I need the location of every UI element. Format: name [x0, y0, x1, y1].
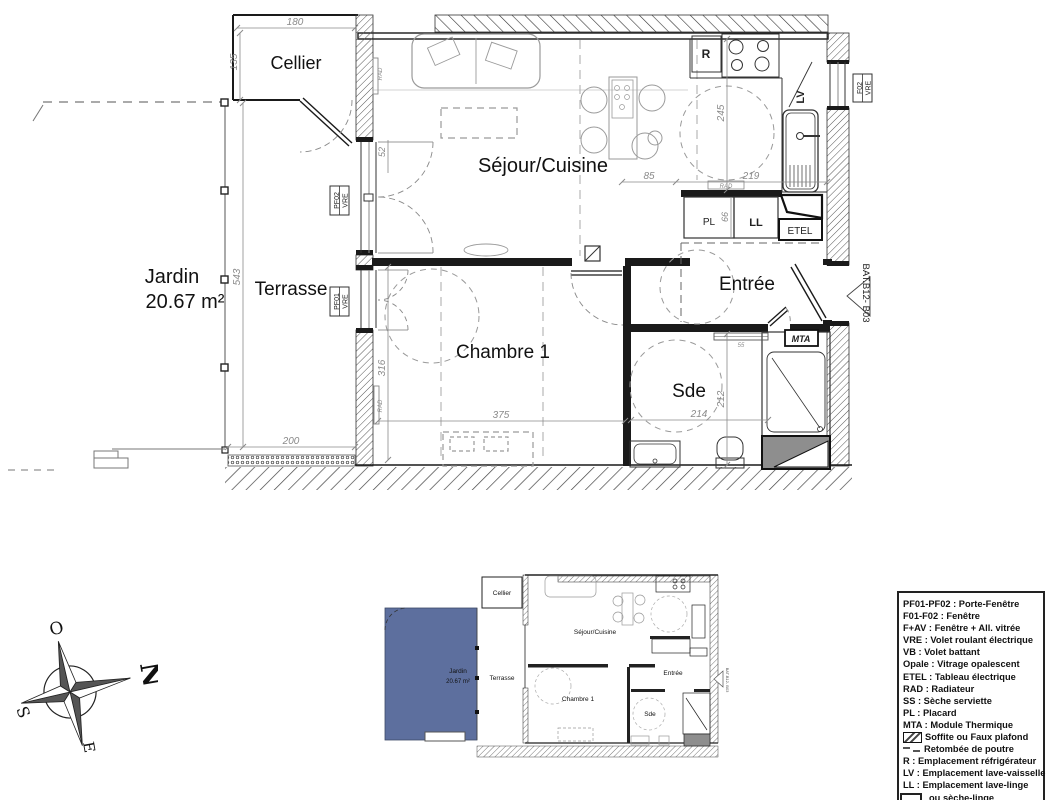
dim-375: 375	[493, 410, 510, 421]
vre-label: VRE	[343, 193, 350, 208]
washbasin	[630, 441, 680, 467]
furniture	[373, 34, 665, 466]
room-label-sejour: Séjour/Cuisine	[478, 155, 608, 177]
ground-hatch-band	[225, 467, 852, 490]
mini-label-jardin-area: 20.67 m²	[446, 679, 470, 685]
legend-item: MTA : Module Thermique	[903, 719, 1040, 731]
rad-tag: RAD	[720, 184, 733, 190]
mini-label-jardin: Jardin	[449, 668, 467, 675]
legend-item-retombee: Retombée de poutre	[903, 743, 1040, 755]
dim-135: 135	[229, 53, 240, 70]
soffite-shape	[781, 195, 822, 218]
column-box	[585, 246, 600, 261]
dishwasher-tag: LV	[795, 90, 807, 104]
coffee-table	[441, 108, 517, 138]
room-label-jardin: Jardin	[145, 266, 199, 288]
compass-rose: O N S E	[8, 608, 158, 768]
dim-52: 52	[377, 147, 387, 157]
legend-item: LV : Emplacement lave-vaisselle	[903, 767, 1040, 779]
f02-label: F02	[857, 82, 864, 94]
window-pf01	[361, 270, 408, 330]
fence-post	[221, 276, 228, 283]
dim-219: 219	[742, 171, 760, 182]
window-f02	[830, 62, 845, 106]
mini-label-sejour: Séjour/Cuisine	[574, 629, 617, 636]
toilet	[716, 437, 744, 468]
legend-item: Opale : Vitrage opalescent	[903, 658, 1040, 670]
dim-85: 85	[643, 171, 655, 182]
legend-partial-icon	[900, 793, 922, 800]
jardin-area-label: 20.67 m²	[146, 291, 225, 313]
ceiling-guides	[372, 40, 823, 460]
rad-tag: RAD	[378, 67, 384, 80]
console-object	[464, 244, 508, 256]
legend-item: RAD : Radiateur	[903, 683, 1040, 695]
window-pf02	[361, 142, 433, 253]
exterior-walls	[355, 15, 852, 466]
mini-overview-plan: Cellier Séjour/Cuisine Jardin 20.67 m² T…	[378, 568, 768, 783]
legend-item: VRE : Volet roulant électrique	[903, 634, 1040, 646]
garden-step	[94, 458, 128, 468]
compass-west-label: O	[47, 618, 66, 641]
pf02-vre-tag: PF02 VRE	[330, 186, 350, 215]
mini-label-sde: Sde	[644, 711, 656, 718]
mini-label-entree: Entrée	[663, 670, 683, 677]
entrance-door	[791, 259, 870, 326]
fence-post	[221, 187, 228, 194]
legend-item: F+AV : Fenêtre + All. vitrée	[903, 622, 1040, 634]
mini-bat-label: BAT.B12- B03	[725, 668, 730, 694]
bedroom-door	[571, 271, 623, 325]
dim-55: 55	[738, 343, 745, 349]
legend-item: SS : Sèche serviette	[903, 695, 1040, 707]
legend-item: R : Emplacement réfrigérateur	[903, 755, 1040, 767]
washer-tag: LL	[749, 217, 763, 229]
bed	[443, 432, 533, 466]
vre-label: VRE	[866, 80, 873, 95]
bathroom	[630, 332, 830, 469]
room-label-terrasse: Terrasse	[255, 279, 328, 300]
sofa	[412, 34, 540, 88]
f02-vre-tag: F02 VRE	[853, 74, 873, 102]
dim-212: 212	[716, 390, 727, 408]
legend-item: VB : Volet battant	[903, 646, 1040, 658]
legend-item: PF01-PF02 : Porte-Fenêtre	[903, 598, 1040, 610]
mini-fixtures	[545, 576, 723, 746]
beam-dash-icon	[903, 745, 921, 753]
mta-tag: MTA	[792, 334, 811, 344]
dim-316: 316	[377, 359, 388, 376]
mini-garden-step	[425, 732, 465, 741]
legend-item: ETEL : Tableau électrique	[903, 671, 1040, 683]
placard-tag: PL	[703, 217, 716, 228]
soffite-hatch-icon	[903, 732, 922, 743]
dim-200: 200	[282, 436, 300, 447]
mini-building	[477, 575, 723, 757]
compass-south-label: S	[12, 704, 34, 721]
towel-radiator	[714, 333, 768, 340]
legend-item: PL : Placard	[903, 707, 1040, 719]
mini-labels: Cellier Séjour/Cuisine Jardin 20.67 m² T…	[446, 590, 730, 718]
kitchen	[690, 34, 827, 192]
dimensions	[225, 25, 830, 468]
mini-label-chambre: Chambre 1	[562, 696, 595, 703]
rad-tag: RAD	[378, 399, 384, 412]
dim-245: 245	[716, 104, 727, 122]
pf01-label: PF01	[334, 293, 341, 310]
legend-item-soffite: Soffite ou Faux plafond	[903, 731, 1040, 743]
dim-214: 214	[690, 409, 708, 420]
terrace-edge-band	[228, 455, 355, 466]
dim-ticks	[225, 25, 830, 468]
mini-circles	[535, 596, 687, 730]
soffite-band	[435, 15, 828, 32]
etel-tag: ETEL	[787, 226, 812, 237]
main-floor-plan: PF02 VRE PF01 VRE F02 VRE Cellier Séjour…	[0, 0, 890, 500]
floor-plan-page: PF02 VRE PF01 VRE F02 VRE Cellier Séjour…	[0, 0, 1047, 800]
shower	[762, 332, 830, 436]
fence-post	[221, 364, 228, 371]
room-label-cellier: Cellier	[270, 53, 321, 73]
pf01-vre-tag: PF01 VRE	[330, 287, 350, 316]
pf02-label: PF02	[334, 192, 341, 209]
person-figure	[632, 133, 658, 159]
compass-east-label: E	[79, 740, 99, 754]
dim-66: 66	[720, 212, 730, 222]
room-label-chambre: Chambre 1	[456, 342, 550, 363]
dining-set	[581, 77, 665, 159]
legend-box: PF01-PF02 : Porte-Fenêtre F01-F02 : Fenê…	[897, 591, 1045, 800]
legend-item-continuation: ou sèche-linge	[903, 792, 1040, 800]
mini-soffite	[558, 576, 710, 582]
kitchen-sink	[783, 110, 820, 192]
cellier-door	[300, 98, 352, 152]
mini-label-cellier: Cellier	[493, 590, 512, 597]
compass-north-label: N	[133, 660, 158, 690]
bat-ref-label: BAT.B12- B03	[860, 264, 871, 323]
fridge-tag: R	[702, 47, 711, 61]
room-label-entree: Entrée	[719, 274, 775, 295]
dim-180: 180	[287, 17, 304, 28]
garden-step	[94, 451, 118, 458]
compass-star	[10, 627, 143, 756]
legend-item: F01-F02 : Fenêtre	[903, 610, 1040, 622]
cooktop	[722, 34, 779, 77]
bathroom-soffite-corner	[762, 436, 830, 469]
vre-label: VRE	[343, 294, 350, 309]
mini-ground-hatch	[477, 746, 718, 757]
fence-post	[221, 99, 228, 106]
mini-label-terrasse: Terrasse	[490, 675, 515, 682]
bathroom-door	[768, 307, 790, 326]
room-label-sde: Sde	[672, 381, 706, 402]
dim-543: 543	[232, 268, 243, 285]
legend-item: LL : Emplacement lave-linge	[903, 779, 1040, 791]
